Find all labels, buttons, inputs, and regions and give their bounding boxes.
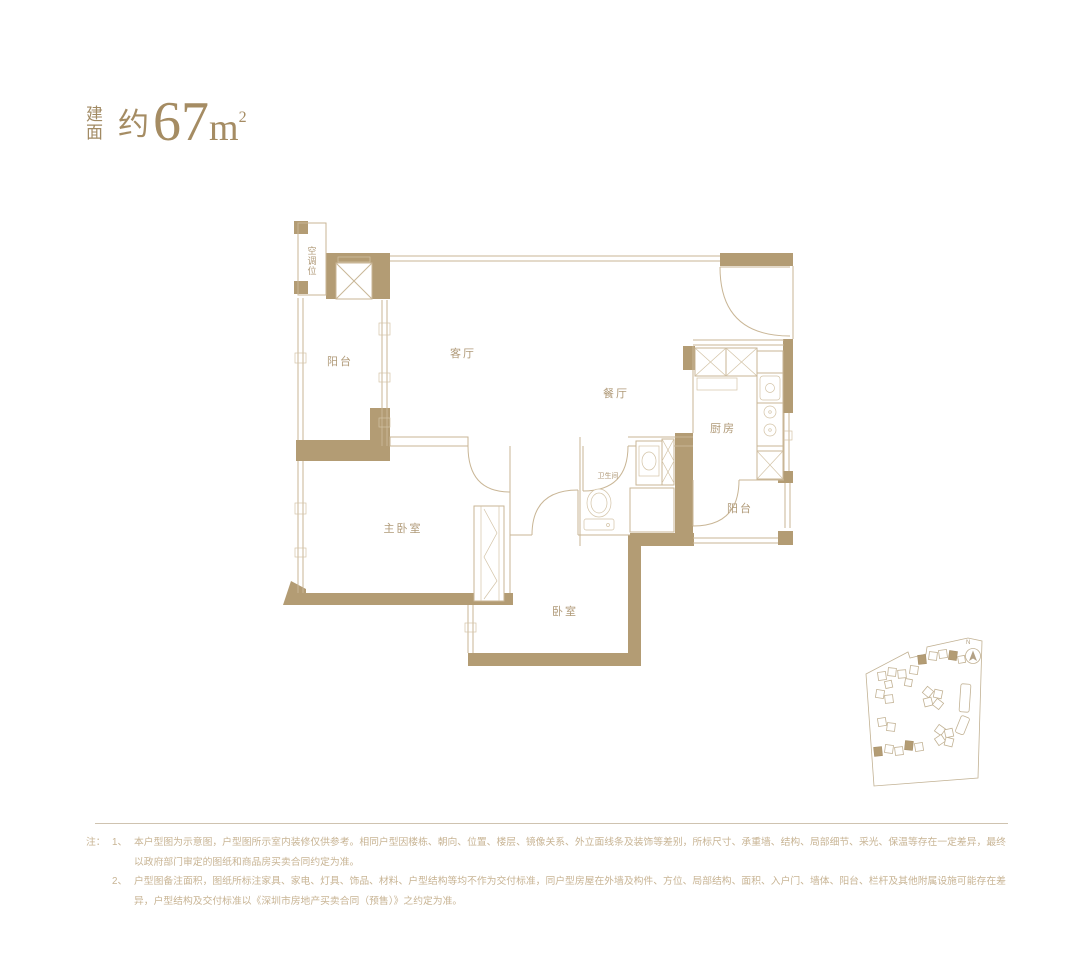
note-2-text: 户型图备注面积，图纸所标注家具、家电、灯具、饰品、材料、户型结构等均不作为交付标…	[134, 872, 1012, 911]
notes-prefix-spacer	[86, 872, 112, 911]
room-label-dining-room: 餐厅	[603, 385, 629, 401]
room-label-bedroom: 卧室	[552, 603, 578, 619]
kitchen-counter	[695, 348, 783, 479]
bathroom-sink	[636, 441, 662, 485]
area-title-prefix: 建 面	[86, 106, 104, 142]
footer-divider	[95, 823, 1008, 824]
room-label-master-bedroom: 主卧室	[384, 520, 423, 536]
shower-area	[630, 488, 674, 532]
wardrobe	[474, 506, 504, 601]
toilet	[584, 489, 614, 530]
room-label-bathroom: 卫生间	[598, 471, 619, 481]
title-approx: 约	[118, 99, 149, 144]
note-2-number: 2、	[112, 872, 134, 911]
title-area-unit: m2	[209, 98, 247, 148]
title-char-jian: 建	[86, 106, 104, 124]
page: { "title": { "stack_top": "建", "stack_bo…	[0, 0, 1080, 959]
unit-exponent: 2	[239, 109, 247, 126]
room-label-living-room: 客厅	[450, 345, 476, 361]
area-title: 建 面 约 67 m2	[86, 96, 247, 148]
room-label-balcony-left: 阳台	[327, 353, 353, 369]
north-label: N	[966, 640, 970, 646]
title-area-number: 67	[153, 96, 209, 148]
room-label-kitchen: 厨房	[710, 420, 736, 436]
room-label-balcony-right: 阳台	[727, 500, 753, 516]
duct-shaft	[662, 439, 674, 485]
note-1-text: 本户型图为示意图，户型图所示室内装修仅供参考。相同户型因楼栋、朝向、位置、楼层、…	[134, 833, 1012, 872]
unit-base: m	[209, 107, 239, 149]
note-1-number: 1、	[112, 833, 134, 872]
ac-shaft	[336, 263, 372, 299]
floor-plan: 空调位 阳台 客厅 餐厅 厨房 卫生间 阳台 主卧室 卧室	[278, 203, 808, 693]
room-label-ac-slot: 空调位	[306, 246, 319, 276]
site-plan: N	[852, 630, 1002, 792]
doors-group	[468, 267, 790, 535]
floor-plan-svg	[278, 203, 808, 693]
title-char-mian: 面	[86, 124, 104, 142]
site-plan-svg: N	[852, 630, 1002, 792]
notes-prefix: 注：	[86, 833, 112, 872]
disclaimer-notes: 注： 1、 本户型图为示意图，户型图所示室内装修仅供参考。相同户型因楼栋、朝向、…	[86, 833, 1012, 911]
